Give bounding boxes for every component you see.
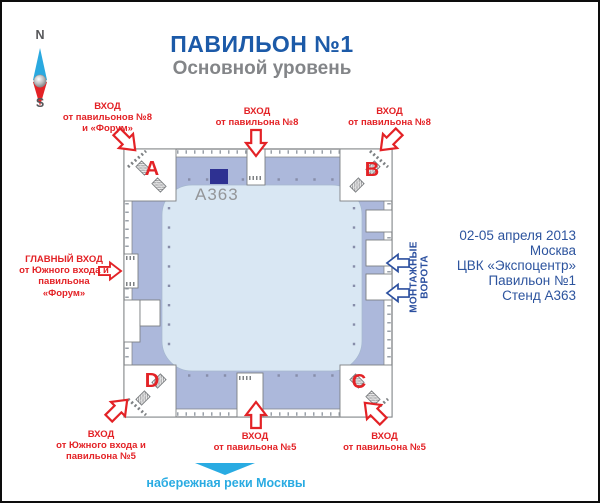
entrance-label-bottom-right: ВХОД от павильона №5 (322, 431, 447, 453)
entrance-label-top-left: ВХОД от павильонов №8 и «Форум» (45, 101, 170, 135)
entrance-label-top-right: ВХОД от павильона №8 (327, 106, 452, 128)
event-date: 02-05 апреля 2013 (356, 228, 576, 243)
corner-letter-a: А (140, 158, 164, 181)
event-pavilion: Павильон №1 (356, 273, 576, 288)
corner-letter-b: В (360, 159, 384, 182)
river-triangle-icon (195, 463, 255, 475)
entrance-label-bottom-center: ВХОД от павильона №5 (193, 431, 317, 453)
main-entrance-label: ГЛАВНЫЙ ВХОД от Южного входа и павильона… (10, 254, 118, 299)
embankment-label: набережная реки Москвы (96, 476, 356, 490)
corner-letter-d: D (140, 370, 164, 393)
stand-a363-label: А363 (195, 185, 251, 205)
entrance-label-bottom-left: ВХОД от Южного входа и павильона №5 (40, 429, 162, 463)
stand-a363-marker (210, 169, 228, 184)
page-subtitle: Основной уровень (92, 58, 432, 80)
compass-north-label: N (28, 28, 52, 42)
corner-letter-c: С (347, 371, 371, 394)
event-info-block: 02-05 апреля 2013 Москва ЦВК «Экспоцентр… (356, 228, 576, 303)
central-hall (162, 185, 362, 371)
event-stand: Стенд А363 (356, 288, 576, 303)
pavilion-floor-plan-page: N S ПАВИЛЬОН №1 Основной уровень ВХОД от… (0, 0, 600, 503)
event-city: Москва (356, 243, 576, 258)
page-title: ПАВИЛЬОН №1 (92, 31, 432, 58)
entrance-label-top-center: ВХОД от павильона №8 (195, 106, 319, 128)
event-venue: ЦВК «Экспоцентр» (356, 258, 576, 273)
